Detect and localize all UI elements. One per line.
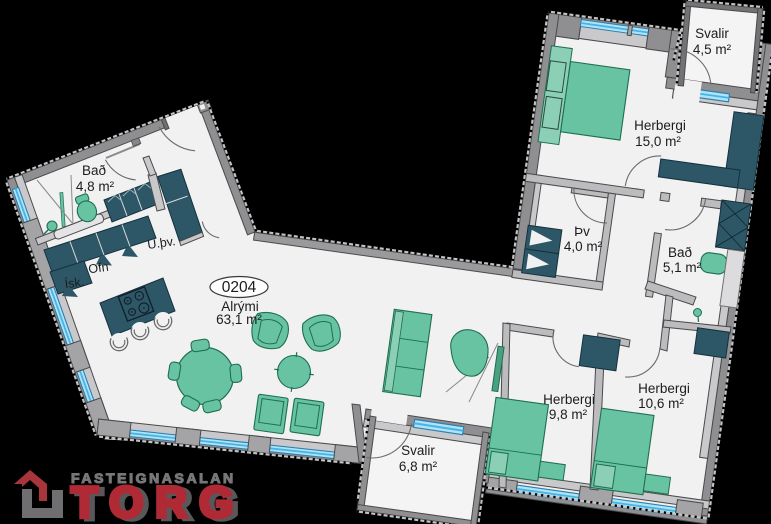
- svg-text:4,0 m²: 4,0 m²: [564, 239, 603, 254]
- svg-text:15,0 m²: 15,0 m²: [635, 134, 681, 149]
- svg-text:Svalir: Svalir: [401, 443, 435, 458]
- svg-text:Bað: Bað: [668, 245, 692, 260]
- svg-text:63,1 m²: 63,1 m²: [216, 312, 262, 327]
- svg-text:Bað: Bað: [82, 163, 106, 178]
- svg-text:Ísk.: Ísk.: [64, 274, 85, 292]
- svg-text:5,1 m²: 5,1 m²: [663, 260, 702, 275]
- svg-text:6,8 m²: 6,8 m²: [399, 459, 438, 474]
- svg-text:Þv: Þv: [574, 224, 590, 239]
- svg-text:TORG: TORG: [71, 478, 245, 524]
- svg-text:9,8 m²: 9,8 m²: [549, 407, 588, 422]
- svg-text:Herbergi: Herbergi: [543, 392, 595, 407]
- svg-text:10,6 m²: 10,6 m²: [638, 396, 684, 411]
- svg-text:0204: 0204: [222, 279, 257, 296]
- svg-text:Ofn: Ofn: [87, 260, 109, 277]
- svg-text:4,8 m²: 4,8 m²: [76, 179, 115, 194]
- svg-text:Herbergi: Herbergi: [638, 381, 690, 396]
- svg-text:4,5 m²: 4,5 m²: [693, 42, 732, 57]
- svg-text:Herbergi: Herbergi: [634, 118, 686, 133]
- svg-text:Svalir: Svalir: [695, 26, 729, 41]
